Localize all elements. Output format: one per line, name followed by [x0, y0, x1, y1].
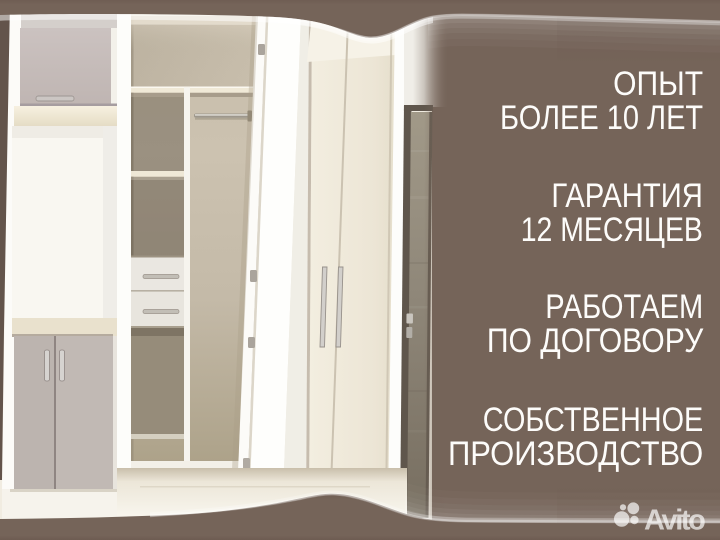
svg-text:Avito: Avito	[644, 505, 705, 537]
